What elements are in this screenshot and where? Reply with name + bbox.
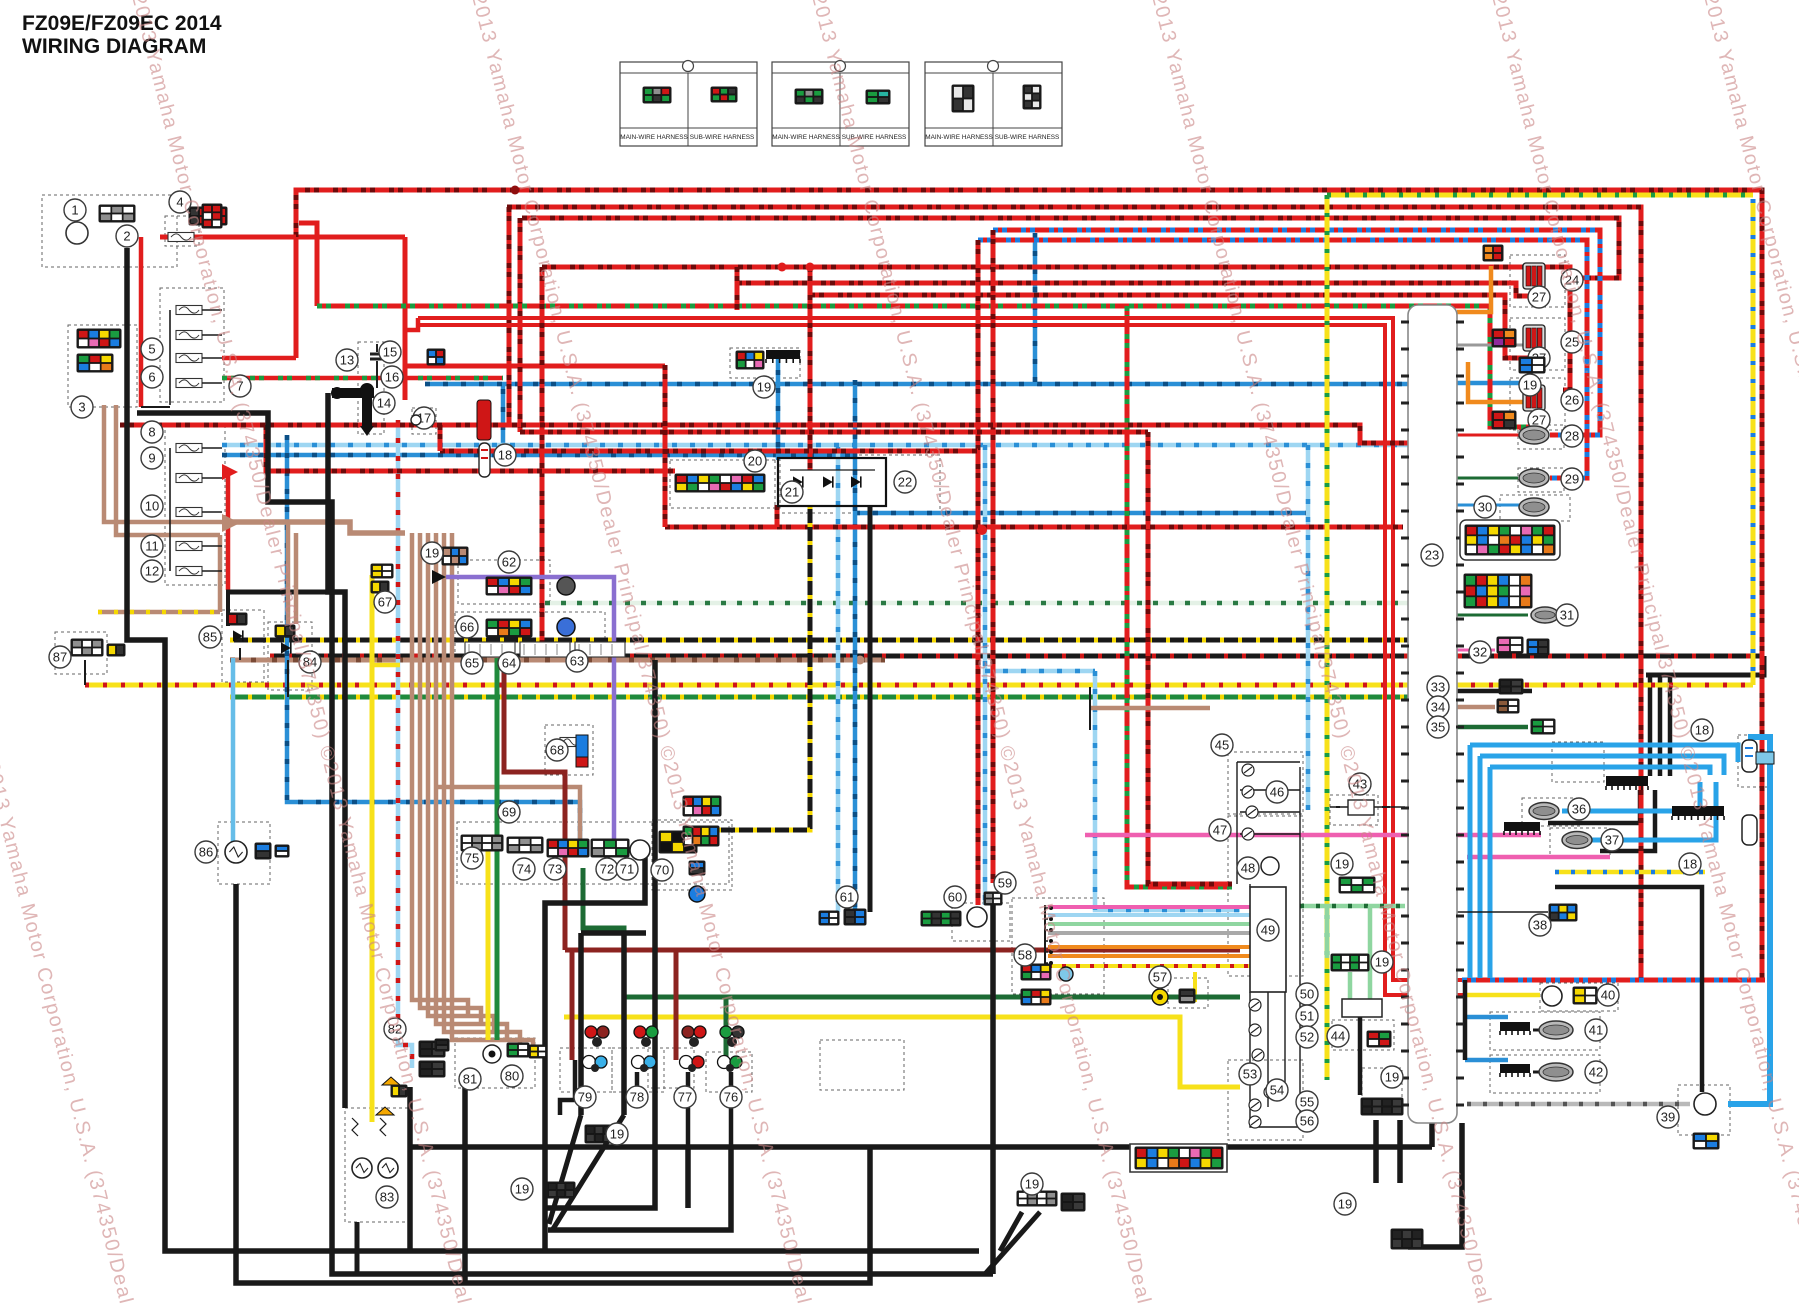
svg-text:16: 16 [385, 370, 399, 385]
svg-text:54: 54 [1270, 1083, 1284, 1098]
svg-text:19: 19 [425, 546, 439, 561]
svg-text:61: 61 [840, 890, 854, 905]
svg-text:71: 71 [620, 862, 634, 877]
svg-text:MAIN-WIRE HARNESS: MAIN-WIRE HARNESS [925, 134, 992, 141]
svg-text:41: 41 [1589, 1023, 1603, 1038]
svg-text:19: 19 [1335, 857, 1349, 872]
svg-text:30: 30 [1478, 500, 1492, 515]
svg-text:5: 5 [148, 342, 155, 357]
svg-text:13: 13 [340, 353, 354, 368]
svg-text:12: 12 [145, 564, 159, 579]
svg-text:2: 2 [123, 229, 130, 244]
svg-text:20: 20 [748, 454, 762, 469]
svg-text:FZ09E/FZ09EC 2014: FZ09E/FZ09EC 2014 [22, 12, 222, 35]
svg-text:6: 6 [148, 370, 155, 385]
svg-text:19: 19 [610, 1127, 624, 1142]
svg-text:72: 72 [600, 862, 614, 877]
svg-text:55: 55 [1300, 1095, 1314, 1110]
svg-text:86: 86 [199, 845, 213, 860]
svg-text:48: 48 [1241, 861, 1255, 876]
svg-text:19: 19 [757, 380, 771, 395]
svg-text:40: 40 [1601, 988, 1615, 1003]
svg-text:19: 19 [1025, 1177, 1039, 1192]
svg-text:67: 67 [378, 595, 392, 610]
svg-text:8: 8 [148, 425, 155, 440]
svg-text:42: 42 [1589, 1065, 1603, 1080]
svg-text:75: 75 [465, 851, 479, 866]
svg-text:81: 81 [463, 1072, 477, 1087]
svg-text:18: 18 [1683, 857, 1697, 872]
svg-text:29: 29 [1565, 472, 1579, 487]
svg-text:22: 22 [898, 475, 912, 490]
svg-text:58: 58 [1018, 948, 1032, 963]
svg-text:36: 36 [1572, 802, 1586, 817]
svg-text:31: 31 [1560, 608, 1574, 623]
svg-text:76: 76 [724, 1090, 738, 1105]
svg-text:83: 83 [380, 1190, 394, 1205]
svg-text:37: 37 [1605, 833, 1619, 848]
svg-text:MAIN-WIRE HARNESS: MAIN-WIRE HARNESS [772, 134, 839, 141]
svg-text:62: 62 [502, 555, 516, 570]
svg-text:45: 45 [1215, 738, 1229, 753]
svg-text:69: 69 [502, 805, 516, 820]
svg-text:27: 27 [1532, 290, 1546, 305]
svg-text:18: 18 [1695, 723, 1709, 738]
svg-text:19: 19 [1338, 1197, 1352, 1212]
svg-text:18: 18 [498, 448, 512, 463]
svg-text:57: 57 [1153, 970, 1167, 985]
svg-text:32: 32 [1473, 645, 1487, 660]
svg-text:52: 52 [1300, 1030, 1314, 1045]
svg-text:38: 38 [1533, 918, 1547, 933]
svg-text:60: 60 [948, 890, 962, 905]
svg-text:53: 53 [1243, 1067, 1257, 1082]
svg-text:59: 59 [998, 876, 1012, 891]
svg-text:85: 85 [203, 630, 217, 645]
svg-text:21: 21 [785, 485, 799, 500]
svg-text:39: 39 [1661, 1110, 1675, 1125]
svg-text:MAIN-WIRE HARNESS: MAIN-WIRE HARNESS [620, 134, 687, 141]
svg-text:49: 49 [1261, 923, 1275, 938]
svg-text:26: 26 [1565, 393, 1579, 408]
svg-text:9: 9 [148, 451, 155, 466]
svg-text:64: 64 [502, 656, 516, 671]
svg-text:SUB-WIRE HARNESS: SUB-WIRE HARNESS [995, 134, 1060, 141]
svg-text:46: 46 [1270, 785, 1284, 800]
svg-text:77: 77 [678, 1090, 692, 1105]
svg-text:SUB-WIRE HARNESS: SUB-WIRE HARNESS [690, 134, 755, 141]
svg-text:15: 15 [383, 345, 397, 360]
svg-text:WIRING DIAGRAM: WIRING DIAGRAM [22, 35, 206, 58]
svg-text:44: 44 [1331, 1029, 1345, 1044]
svg-text:19: 19 [1385, 1070, 1399, 1085]
svg-text:74: 74 [517, 862, 531, 877]
svg-text:23: 23 [1425, 548, 1439, 563]
svg-text:70: 70 [655, 863, 669, 878]
svg-text:3: 3 [78, 400, 85, 415]
svg-text:66: 66 [460, 620, 474, 635]
svg-text:33: 33 [1431, 680, 1445, 695]
svg-text:47: 47 [1213, 823, 1227, 838]
svg-text:14: 14 [377, 396, 391, 411]
svg-text:68: 68 [550, 743, 564, 758]
svg-text:51: 51 [1300, 1009, 1314, 1024]
svg-text:28: 28 [1565, 429, 1579, 444]
svg-text:79: 79 [578, 1090, 592, 1105]
svg-text:87: 87 [53, 650, 67, 665]
svg-text:35: 35 [1431, 720, 1445, 735]
svg-text:80: 80 [505, 1069, 519, 1084]
svg-text:56: 56 [1300, 1114, 1314, 1129]
svg-text:63: 63 [570, 654, 584, 669]
svg-text:78: 78 [630, 1090, 644, 1105]
svg-text:50: 50 [1300, 987, 1314, 1002]
svg-text:19: 19 [515, 1182, 529, 1197]
svg-text:65: 65 [465, 656, 479, 671]
svg-text:19: 19 [1523, 378, 1537, 393]
svg-text:11: 11 [145, 539, 159, 554]
svg-text:73: 73 [548, 862, 562, 877]
svg-text:34: 34 [1431, 700, 1445, 715]
svg-text:1: 1 [71, 203, 78, 218]
svg-text:10: 10 [145, 499, 159, 514]
